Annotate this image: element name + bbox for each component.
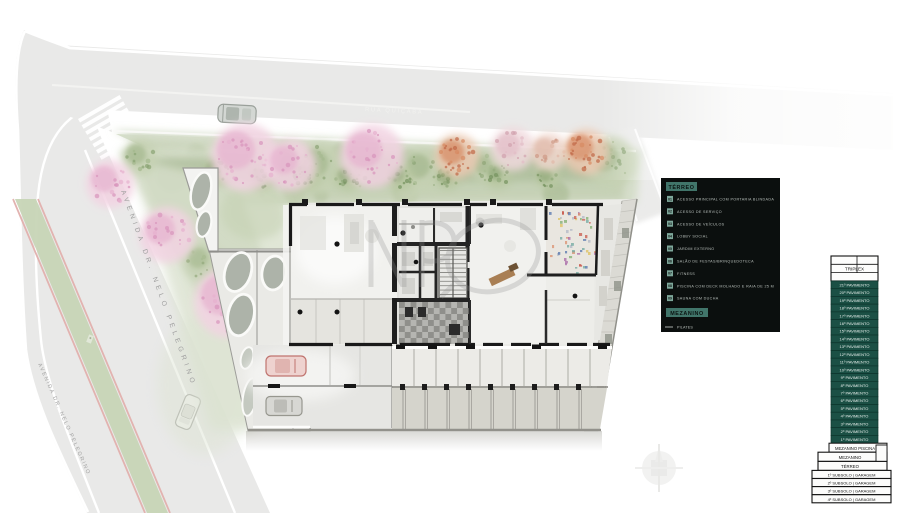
svg-text:14º PAVIMENTO: 14º PAVIMENTO: [840, 336, 870, 341]
svg-text:FITNESS: FITNESS: [677, 272, 695, 276]
svg-text:4º SUBSOLO | GARAGEM: 4º SUBSOLO | GARAGEM: [828, 497, 876, 502]
svg-text:TÉRREO: TÉRREO: [841, 464, 860, 469]
svg-text:19º PAVIMENTO: 19º PAVIMENTO: [840, 298, 870, 303]
svg-text:PISCINA COM DECK MOLHADO E RAI: PISCINA COM DECK MOLHADO E RAIA DE 25 M: [677, 284, 774, 288]
svg-text:PILATES: PILATES: [677, 326, 693, 330]
svg-text:09: 09: [668, 297, 672, 301]
svg-text:SALÃO DE FESTAS/BRINQUEDOTECA: SALÃO DE FESTAS/BRINQUEDOTECA: [677, 259, 754, 264]
svg-text:06: 06: [668, 259, 672, 263]
svg-text:9º PAVIMENTO: 9º PAVIMENTO: [841, 375, 869, 380]
svg-text:16º PAVIMENTO: 16º PAVIMENTO: [840, 321, 870, 326]
svg-text:15º PAVIMENTO: 15º PAVIMENTO: [840, 329, 870, 334]
svg-text:20º PAVIMENTO: 20º PAVIMENTO: [840, 290, 870, 295]
svg-text:3º PAVIMENTO: 3º PAVIMENTO: [841, 421, 869, 426]
svg-text:04: 04: [668, 235, 672, 239]
svg-text:08: 08: [668, 284, 672, 288]
svg-text:MEZANINO: MEZANINO: [670, 311, 704, 317]
svg-text:05: 05: [668, 247, 672, 251]
svg-text:3º SUBSOLO | GARAGEM: 3º SUBSOLO | GARAGEM: [828, 489, 876, 494]
svg-text:MEZANINO PISCINA: MEZANINO PISCINA: [835, 446, 875, 451]
svg-text:LOBBY SOCIAL: LOBBY SOCIAL: [677, 235, 708, 239]
svg-text:5º PAVIMENTO: 5º PAVIMENTO: [841, 406, 869, 411]
svg-text:01: 01: [668, 197, 672, 201]
svg-text:TÉRREO: TÉRREO: [668, 183, 694, 191]
svg-text:17º PAVIMENTO: 17º PAVIMENTO: [840, 313, 870, 318]
svg-text:8º PAVIMENTO: 8º PAVIMENTO: [841, 383, 869, 388]
svg-text:ACESSO PRINCIPAL COM PORTARIA: ACESSO PRINCIPAL COM PORTARIA BLINDADA: [677, 198, 774, 202]
svg-text:12º PAVIMENTO: 12º PAVIMENTO: [840, 352, 870, 357]
svg-text:JARDIM EXTERNO: JARDIM EXTERNO: [677, 247, 714, 251]
svg-text:02: 02: [668, 210, 672, 214]
svg-text:4º PAVIMENTO: 4º PAVIMENTO: [841, 414, 869, 419]
svg-text:MEZANINO: MEZANINO: [839, 455, 862, 460]
svg-text:1º SUBSOLO | GARAGEM: 1º SUBSOLO | GARAGEM: [828, 473, 876, 478]
svg-text:ACESSO DE SERVIÇO: ACESSO DE SERVIÇO: [677, 210, 722, 214]
svg-text:07: 07: [668, 272, 672, 276]
svg-text:ACESSO DE VEÍCULOS: ACESSO DE VEÍCULOS: [677, 222, 725, 226]
svg-text:7º PAVIMENTO: 7º PAVIMENTO: [841, 390, 869, 395]
svg-text:10º PAVIMENTO: 10º PAVIMENTO: [840, 367, 870, 372]
svg-text:21º PAVIMENTO: 21º PAVIMENTO: [840, 282, 870, 287]
svg-text:13º PAVIMENTO: 13º PAVIMENTO: [840, 344, 870, 349]
svg-text:18º PAVIMENTO: 18º PAVIMENTO: [840, 306, 870, 311]
svg-text:TRIPLEX: TRIPLEX: [845, 267, 864, 272]
svg-text:03: 03: [668, 222, 672, 226]
svg-text:2º PAVIMENTO: 2º PAVIMENTO: [841, 429, 869, 434]
svg-text:SAUNA COM DUCHA: SAUNA COM DUCHA: [677, 297, 719, 301]
svg-text:1º PAVIMENTO: 1º PAVIMENTO: [841, 437, 869, 442]
svg-text:11º PAVIMENTO: 11º PAVIMENTO: [840, 360, 870, 365]
svg-text:2º SUBSOLO | GARAGEM: 2º SUBSOLO | GARAGEM: [828, 481, 876, 486]
svg-text:6º PAVIMENTO: 6º PAVIMENTO: [841, 398, 869, 403]
